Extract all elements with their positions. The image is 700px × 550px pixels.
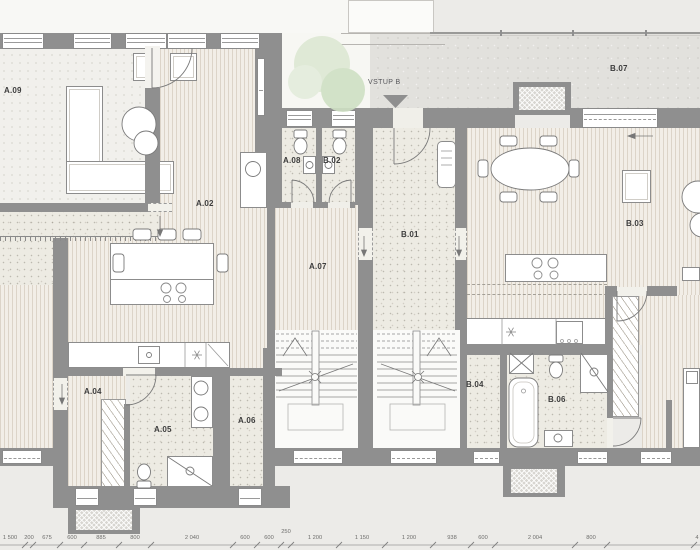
dimension-label: 885 [96,535,106,541]
floor-plan-canvas: A.09A.02A.08B.02B.07B.01A.07B.03A.04A.05… [0,0,700,550]
room-label-a07: A.07 [309,263,327,271]
dimension-ticks [22,542,697,548]
wardrobe-a04 [101,399,126,488]
kitchen-island-b [505,254,607,282]
door-opening [291,202,313,208]
door-opening [607,418,613,448]
wc-sink-a08 [303,156,316,174]
kitchen-appliance-b [556,321,583,344]
dimension-label: 600 [264,535,274,541]
dimension-label: 2 040 [185,535,199,541]
pocket-door [358,228,373,260]
window [2,450,42,464]
wardrobe-corridor-right [612,296,639,417]
window [331,110,356,127]
window [640,451,672,464]
dimension-label: 1 200 [308,535,322,541]
wall [316,128,322,205]
wall [68,368,123,376]
dimension-label: 1 500 [3,535,17,541]
door-opening [123,368,155,376]
door-opening [328,202,350,208]
dimension-label: 2 004 [528,535,542,541]
room-label-b03: B.03 [626,220,644,228]
kitchen-sink-a [138,346,160,364]
wall [570,108,582,128]
room-label-b06: B.06 [548,396,566,404]
wall [124,404,130,488]
wall [666,400,672,448]
roof-tick [572,30,574,36]
window [73,33,112,49]
door-opening [617,287,647,296]
room-label-b02: B.02 [323,157,341,165]
dimension-label: 200 [24,535,34,541]
dimension-label: 600 [67,535,77,541]
wall [213,376,230,486]
dimension-label: 600 [478,535,488,541]
window [390,450,437,464]
shower-b06 [580,352,609,393]
room-under-a09-floor-2 [0,238,53,285]
entrance-b-label: VSTUP B [368,79,401,86]
wardrobe-b01 [437,141,456,188]
wall [423,108,515,128]
ceiling-dash-line [467,294,607,295]
window-seat-b03 [622,170,651,203]
window [133,488,157,506]
room-label-a04: A.04 [84,388,102,396]
roof-step-block [348,0,434,33]
window [286,110,313,127]
sliding-window [582,108,658,128]
room-left-lower-floor [0,285,53,448]
tall-window-a02 [257,58,265,116]
room-label-b07: B.07 [610,65,628,73]
roof-edge-line [430,32,700,34]
room-label-a02: A.02 [196,200,214,208]
fireplace-unit [240,152,267,208]
railing-line [0,236,160,241]
chimney-hatch [519,87,565,110]
wall [460,344,607,355]
room-label-a06: A.06 [238,417,256,425]
room-under-a09-floor [0,212,160,238]
dimension-label: 250 [281,529,291,535]
wall [500,355,507,448]
stair-a-floor [275,330,358,448]
wall [0,203,148,212]
room-label-a08: A.08 [283,157,301,165]
hall-a06-floor [230,376,263,486]
pocket-door [455,228,467,260]
kitchen-counter-b [465,318,607,346]
door-opening [145,46,160,88]
room-label-b04: B.04 [466,381,484,389]
dimension-label: 938 [447,535,457,541]
door-opening [393,108,423,128]
wall [353,108,393,128]
dimension-label: 1 200 [402,535,416,541]
window [293,450,343,464]
dimension-label: 4 [695,535,698,541]
porch-a-hatch [76,510,132,530]
pocket-door [53,378,68,410]
wall [647,286,677,296]
wall [53,238,68,448]
dimension-label: 600 [240,535,250,541]
hall-b04-floor [467,355,500,448]
roof-edge-line-2 [430,35,700,36]
wall [358,205,373,330]
window [220,33,260,49]
wall [355,128,373,205]
room-label-a05: A.05 [154,426,172,434]
dimension-label: 675 [42,535,52,541]
shower-a05 [167,456,213,487]
window [75,488,99,506]
garden-square [282,33,370,113]
pocket-door [148,203,172,212]
room-label-a09: A.09 [4,87,22,95]
dimension-label: 800 [130,535,140,541]
window [238,488,262,506]
window [577,451,608,464]
wall [605,286,617,296]
kitchen-island-a [110,279,214,305]
side-table-right [682,267,700,281]
dining-table-a [110,243,214,280]
dimension-label: 1 150 [355,535,369,541]
washing-machine [509,352,534,374]
wall [267,33,282,208]
wall [358,330,373,448]
roof-tick [645,30,647,36]
sink-b06 [544,430,573,447]
sink-cabinet-a05 [191,376,213,428]
dimension-label: 800 [586,535,596,541]
window [473,451,500,464]
porch-b-hatch [511,469,557,493]
roof-tick [500,30,502,36]
window [167,33,207,49]
wall [155,368,282,376]
window [2,33,44,49]
wall [658,108,700,128]
wall [605,296,612,355]
room-label-b01: B.01 [401,231,419,239]
wall [607,355,613,418]
stair-b-floor [373,330,460,448]
bed-pillow [686,371,698,384]
ceiling-dash-line [467,284,607,285]
wall [267,205,275,348]
armchair [170,53,197,81]
